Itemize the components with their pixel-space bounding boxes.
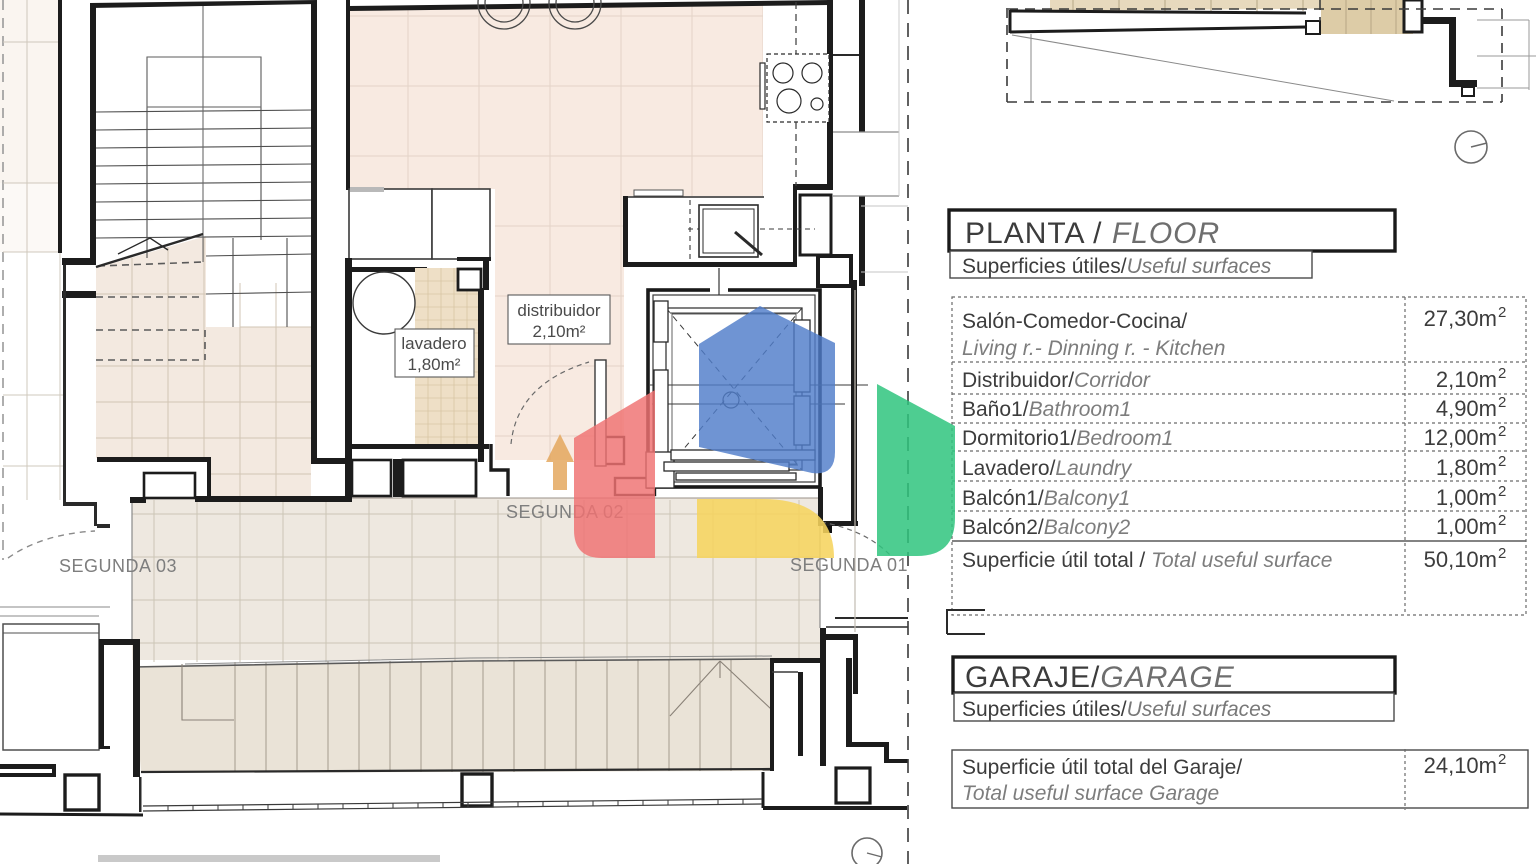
svg-text:50,10m: 50,10m <box>1424 547 1497 572</box>
svg-text:2: 2 <box>1498 483 1506 500</box>
svg-text:Living r.- Dinning r. - Kitche: Living r.- Dinning r. - Kitchen <box>962 337 1225 360</box>
svg-text:1,00m: 1,00m <box>1436 485 1497 510</box>
svg-text:2,10m²: 2,10m² <box>533 322 586 341</box>
svg-text:Superficies útiles/Useful surf: Superficies útiles/Useful surfaces <box>962 698 1272 721</box>
svg-text:4,90m: 4,90m <box>1436 396 1497 421</box>
svg-text:2: 2 <box>1498 304 1506 321</box>
svg-text:1,80m²: 1,80m² <box>408 355 461 374</box>
svg-text:2: 2 <box>1498 394 1506 411</box>
svg-text:Balcón2/Balcony2: Balcón2/Balcony2 <box>962 516 1130 539</box>
svg-text:1,80m: 1,80m <box>1436 455 1497 480</box>
svg-text:24,10m: 24,10m <box>1424 753 1497 778</box>
svg-text:Lavadero/Laundry: Lavadero/Laundry <box>962 457 1133 480</box>
svg-text:GARAJE/GARAGE: GARAJE/GARAGE <box>965 661 1235 694</box>
svg-text:2,10m: 2,10m <box>1436 367 1497 392</box>
svg-text:1,00m: 1,00m <box>1436 514 1497 539</box>
svg-text:2: 2 <box>1498 751 1506 768</box>
svg-text:Dormitorio1/Bedroom1: Dormitorio1/Bedroom1 <box>962 427 1173 450</box>
svg-text:distribuidor: distribuidor <box>517 301 600 320</box>
svg-text:2: 2 <box>1498 545 1506 562</box>
svg-text:2: 2 <box>1498 423 1506 440</box>
svg-text:Superficie útil total / Total: Superficie útil total / Total useful sur… <box>962 549 1332 572</box>
svg-text:Superficies útiles/Useful surf: Superficies útiles/Useful surfaces <box>962 255 1272 278</box>
svg-text:SEGUNDA 03: SEGUNDA 03 <box>59 556 177 576</box>
svg-text:Salón-Comedor-Cocina/: Salón-Comedor-Cocina/ <box>962 310 1187 333</box>
svg-text:2: 2 <box>1498 512 1506 529</box>
svg-text:Balcón1/Balcony1: Balcón1/Balcony1 <box>962 487 1130 510</box>
svg-text:27,30m: 27,30m <box>1424 306 1497 331</box>
svg-text:Baño1/Bathroom1: Baño1/Bathroom1 <box>962 398 1131 421</box>
svg-text:2: 2 <box>1498 453 1506 470</box>
svg-text:lavadero: lavadero <box>401 334 466 353</box>
svg-text:2: 2 <box>1498 365 1506 382</box>
svg-text:Superficie útil total del Gara: Superficie útil total del Garaje/ <box>962 756 1242 779</box>
svg-text:PLANTA / FLOOR: PLANTA / FLOOR <box>965 217 1220 250</box>
svg-text:12,00m: 12,00m <box>1424 425 1497 450</box>
svg-text:Total useful surface Garage: Total useful surface Garage <box>962 782 1219 805</box>
svg-text:Distribuidor/Corridor: Distribuidor/Corridor <box>962 369 1151 392</box>
